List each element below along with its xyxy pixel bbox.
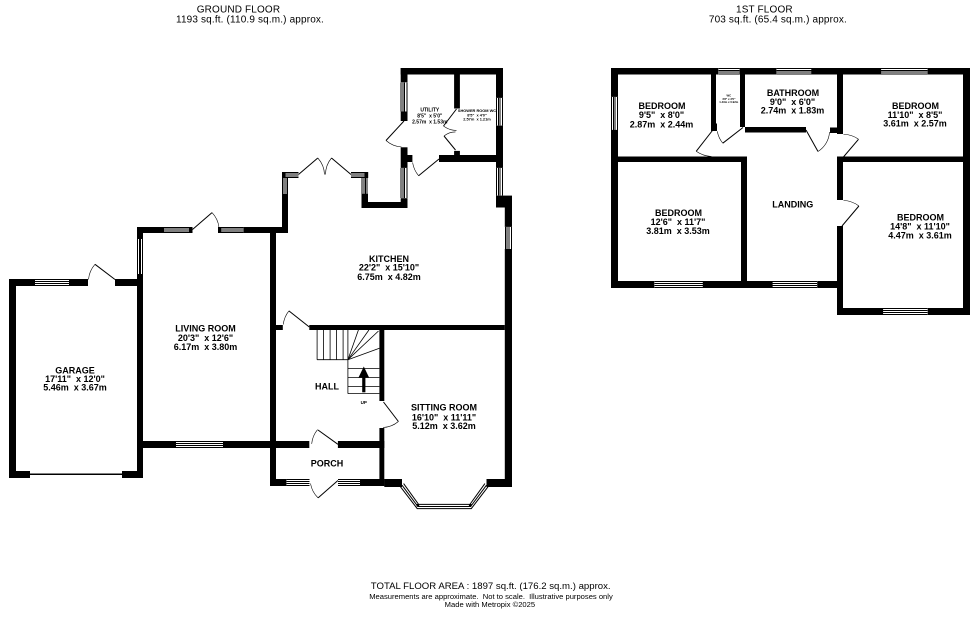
svg-text:1193 sq.ft. (110.9 sq.m.) appr: 1193 sq.ft. (110.9 sq.m.) approx. (176, 15, 324, 26)
svg-text:1.43m x 0.92m: 1.43m x 0.92m (719, 100, 738, 104)
svg-text:2.57m x 1.53m: 2.57m x 1.53m (412, 119, 448, 125)
svg-text:5.12m x 3.62m: 5.12m x 3.62m (412, 421, 476, 431)
svg-text:6.75m x 4.82m: 6.75m x 4.82m (357, 272, 421, 282)
svg-text:3.81m x 3.53m: 3.81m x 3.53m (646, 226, 710, 236)
svg-text:2.74m x 1.83m: 2.74m x 1.83m (761, 106, 825, 116)
svg-text:4.47m x 3.61m: 4.47m x 3.61m (888, 231, 952, 241)
svg-text:PORCH: PORCH (311, 458, 344, 468)
svg-text:LANDING: LANDING (772, 200, 813, 210)
svg-text:3.61m x 2.57m: 3.61m x 2.57m (883, 119, 947, 129)
svg-text:SITTING ROOM: SITTING ROOM (411, 403, 477, 413)
svg-text:2.87m x 2.44m: 2.87m x 2.44m (630, 119, 694, 129)
svg-text:Made with Metropix ©2025: Made with Metropix ©2025 (445, 600, 535, 609)
svg-text:HALL: HALL (315, 381, 339, 391)
svg-text:2.57m x 1.21m: 2.57m x 1.21m (463, 117, 491, 122)
svg-text:TOTAL FLOOR AREA : 1897 sq.ft.: TOTAL FLOOR AREA : 1897 sq.ft. (176.2 sq… (371, 581, 611, 592)
svg-text:UP: UP (361, 400, 367, 405)
svg-text:6.17m x 3.80m: 6.17m x 3.80m (174, 342, 238, 352)
svg-text:703 sq.ft. (65.4 sq.m.) approx: 703 sq.ft. (65.4 sq.m.) approx. (709, 15, 847, 26)
svg-text:5.46m x 3.67m: 5.46m x 3.67m (43, 383, 107, 393)
